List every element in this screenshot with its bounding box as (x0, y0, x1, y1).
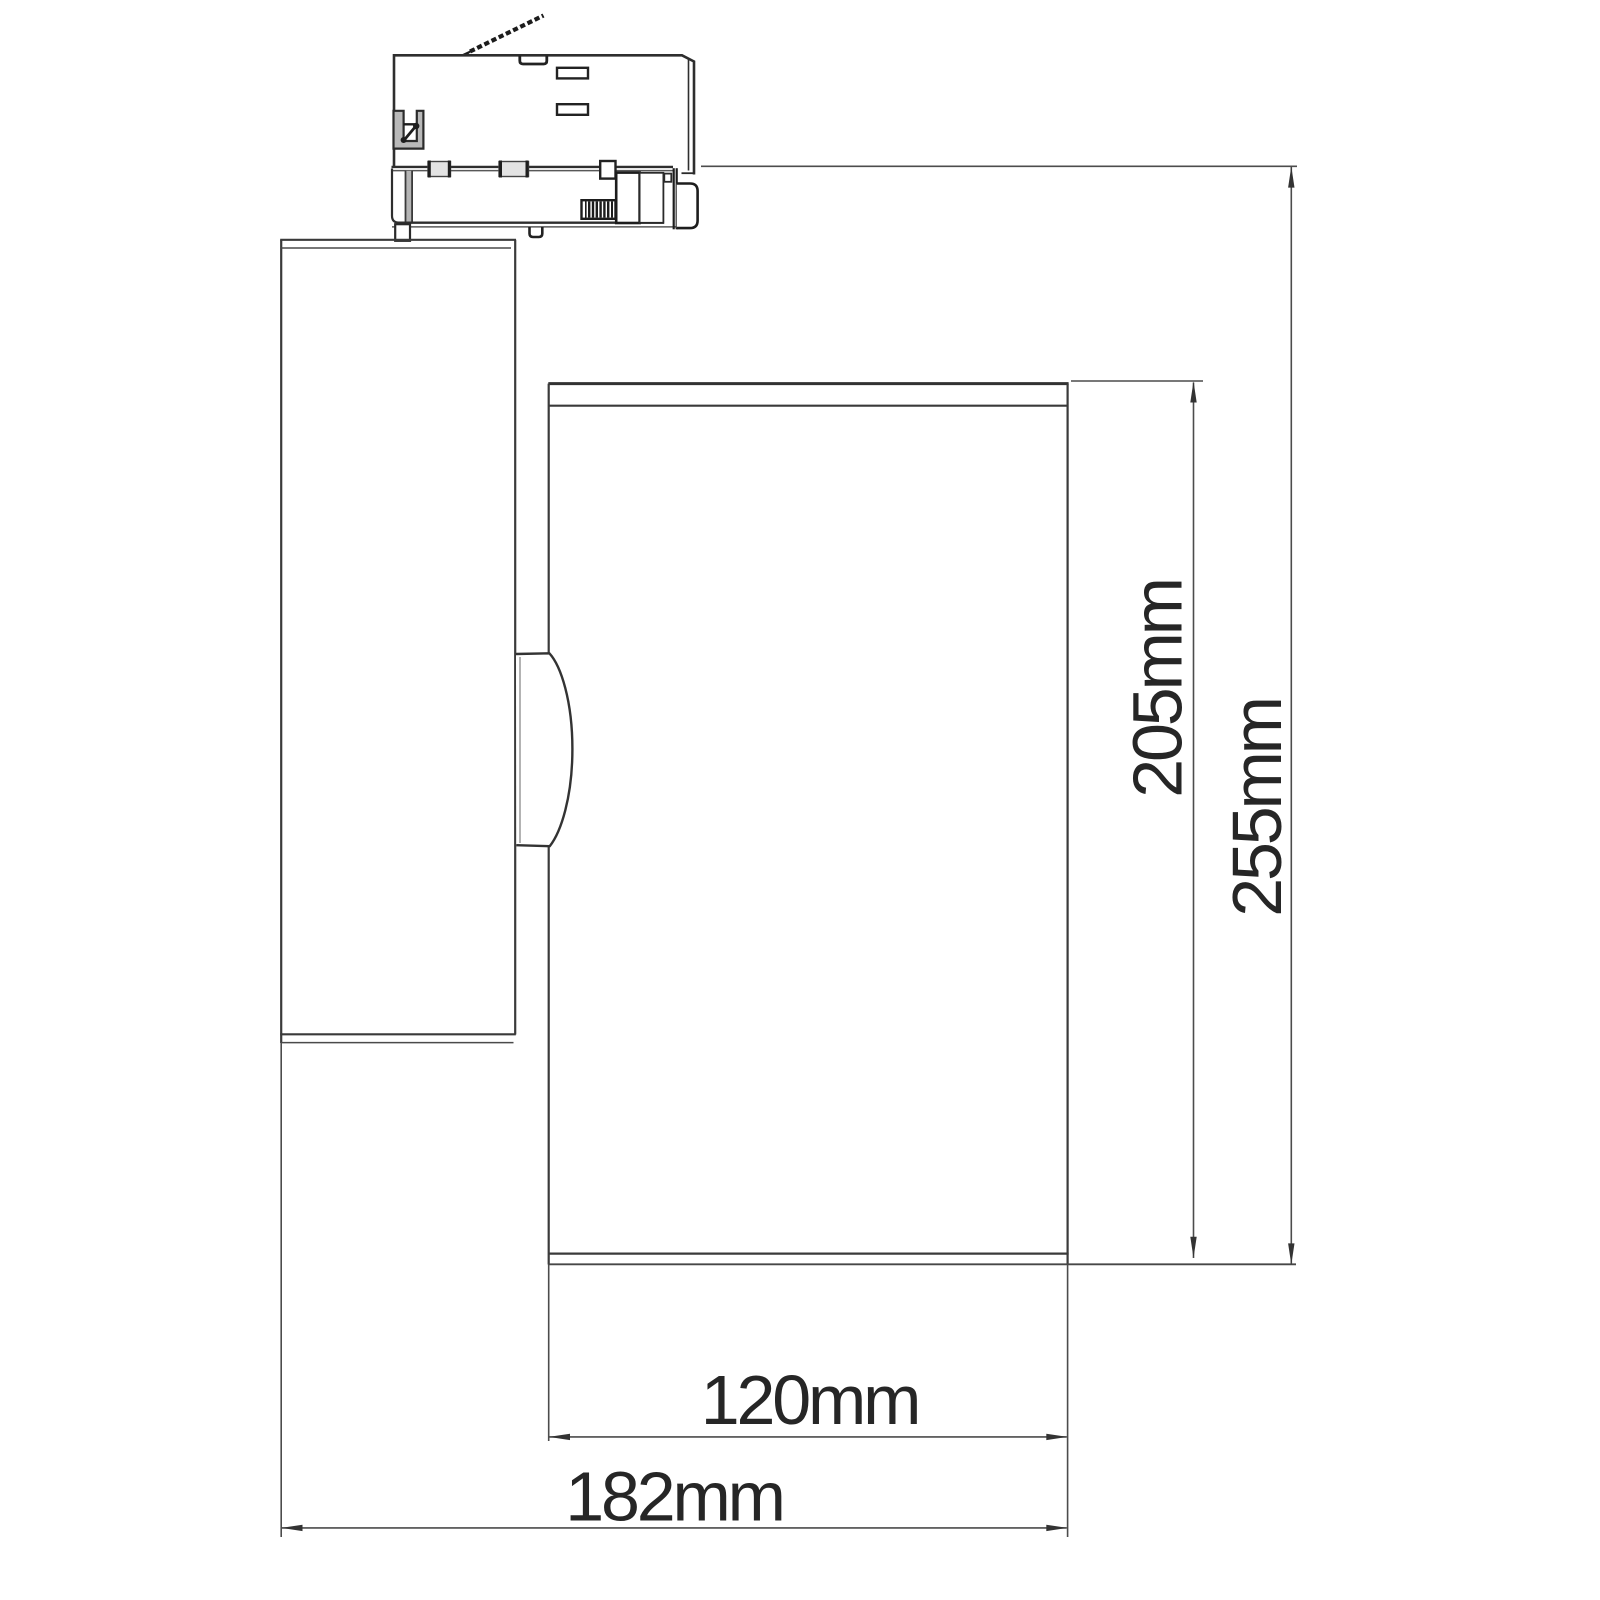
svg-text:205mm: 205mm (1119, 580, 1197, 797)
svg-text:255mm: 255mm (1218, 699, 1296, 916)
svg-text:120mm: 120mm (701, 1361, 918, 1439)
svg-text:182mm: 182mm (565, 1458, 782, 1536)
